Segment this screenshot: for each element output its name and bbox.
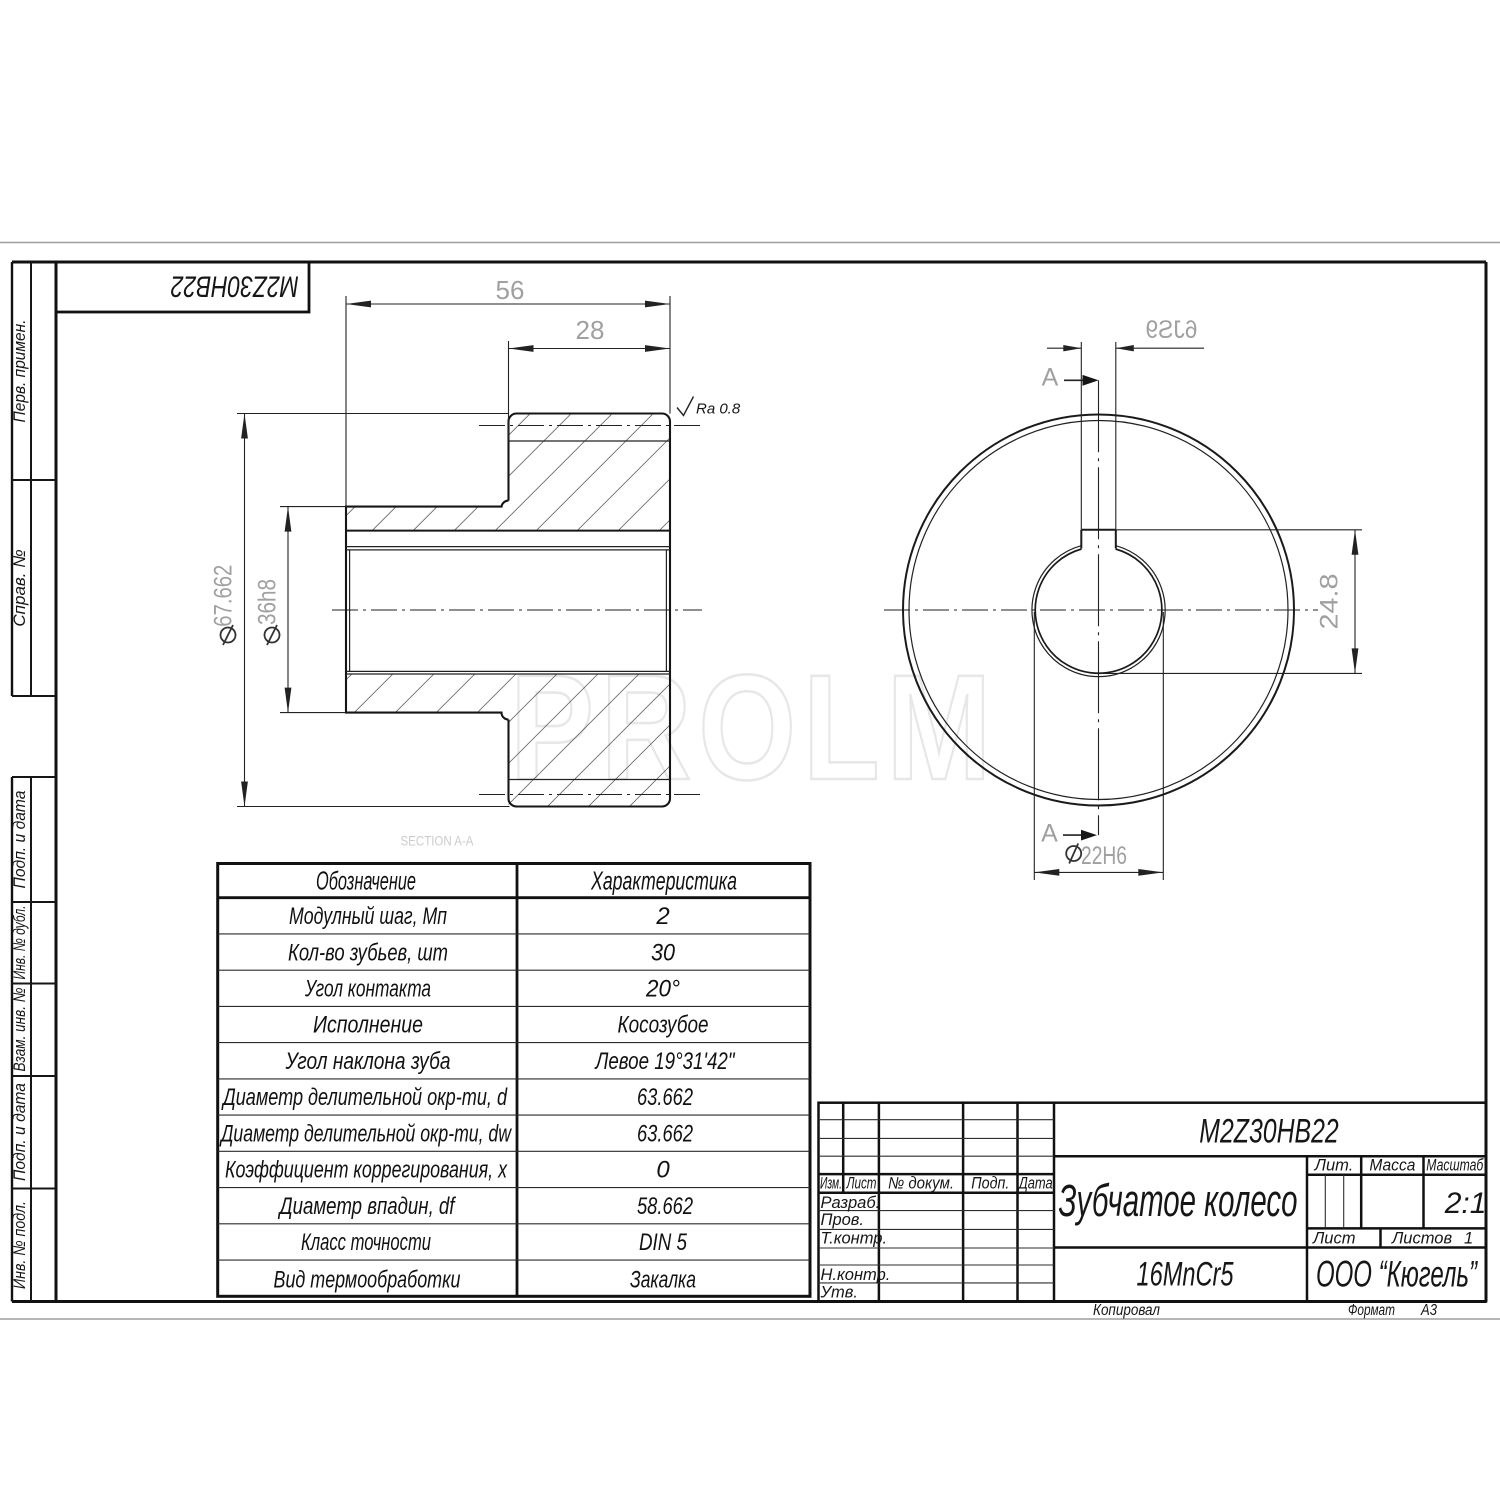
svg-text:Формат: Формат (1348, 1302, 1395, 1319)
svg-text:Масштаб: Масштаб (1426, 1157, 1484, 1175)
svg-text:Разраб.: Разраб. (821, 1194, 881, 1212)
svg-text:Исполнение: Исполнение (313, 1012, 423, 1039)
svg-text:Кол-во зубьев, шт: Кол-во зубьев, шт (288, 939, 448, 966)
svg-text:SECTION A-A: SECTION A-A (401, 833, 475, 849)
svg-text:2: 2 (655, 903, 669, 930)
svg-text:Лит.: Лит. (1314, 1157, 1354, 1175)
svg-text:Диаметр делительной окр-ти, d: Диаметр делительной окр-ти, d (221, 1084, 508, 1111)
svg-text:Пров.: Пров. (821, 1211, 865, 1229)
svg-text:Диаметр делительной окр-ти, dw: Диаметр делительной окр-ти, dw (219, 1120, 512, 1147)
svg-text:ООО “Кюгель”: ООО “Кюгель” (1316, 1254, 1478, 1295)
svg-text:Левое 19°31'42": Левое 19°31'42" (594, 1048, 736, 1075)
svg-text:28: 28 (576, 315, 605, 345)
svg-text:Модулный шаг, Мп: Модулный шаг, Мп (289, 903, 447, 930)
svg-text:Дата: Дата (1017, 1175, 1053, 1193)
svg-text:58.662: 58.662 (637, 1193, 693, 1220)
svg-text:Инв. № подл.: Инв. № подл. (10, 1201, 29, 1289)
svg-text:2:1: 2:1 (1444, 1187, 1487, 1220)
svg-text:Перв. примен.: Перв. примен. (10, 320, 29, 423)
svg-text:DIN 5: DIN 5 (639, 1229, 688, 1256)
svg-text:Изм.: Изм. (820, 1175, 842, 1193)
svg-text:Закалка: Закалка (630, 1266, 696, 1293)
svg-text:Характеристика: Характеристика (590, 866, 737, 896)
svg-text:Взам. инв. №: Взам. инв. № (10, 988, 29, 1072)
svg-text:Лист: Лист (846, 1175, 877, 1193)
svg-text:Н.контр.: Н.контр. (821, 1266, 891, 1284)
svg-text:Лист: Лист (1312, 1230, 1355, 1248)
svg-text:Зубчатое колесо: Зубчатое колесо (1059, 1175, 1298, 1226)
svg-text:M2Z30HB22: M2Z30HB22 (170, 270, 298, 303)
svg-text:63.662: 63.662 (637, 1084, 693, 1111)
svg-text:Угол наклона зуба: Угол наклона зуба (285, 1048, 451, 1075)
svg-text:36h8: 36h8 (254, 579, 282, 625)
svg-text:1: 1 (1464, 1230, 1473, 1248)
svg-text:Обозначение: Обозначение (316, 866, 416, 896)
svg-text:Т.контр.: Т.контр. (821, 1230, 888, 1248)
svg-text:Копировал: Копировал (1093, 1302, 1160, 1319)
svg-text:Коэффициент коррегирования, x: Коэффициент коррегирования, x (225, 1157, 508, 1184)
svg-text:M2Z30HB22: M2Z30HB22 (1199, 1113, 1339, 1151)
svg-text:Косозубое: Косозубое (618, 1012, 709, 1039)
svg-text:A: A (1042, 364, 1059, 392)
svg-text:Ra 0.8: Ra 0.8 (696, 401, 741, 418)
svg-text:63.662: 63.662 (637, 1120, 693, 1147)
svg-text:Справ. №: Справ. № (10, 549, 29, 626)
svg-text:A: A (1041, 820, 1058, 848)
svg-text:Диаметр впадин, df: Диаметр впадин, df (277, 1193, 456, 1220)
svg-text:Утв.: Утв. (820, 1284, 859, 1302)
svg-text:Масса: Масса (1369, 1157, 1415, 1175)
svg-text:24.8: 24.8 (1316, 574, 1344, 630)
svg-text:Инв. № дубл.: Инв. № дубл. (10, 906, 29, 980)
svg-text:Подп. и дата: Подп. и дата (10, 791, 29, 889)
svg-text:Листов: Листов (1391, 1230, 1452, 1248)
svg-text:Вид термообработки: Вид термообработки (274, 1266, 461, 1293)
svg-text:Класс точности: Класс точности (301, 1229, 431, 1256)
svg-text:56: 56 (496, 275, 525, 305)
svg-text:67.662: 67.662 (210, 565, 238, 627)
svg-text:№ докум.: № докум. (888, 1175, 954, 1193)
svg-text:6JS9: 6JS9 (1146, 316, 1198, 344)
svg-text:Подп. и дата: Подп. и дата (10, 1083, 29, 1181)
svg-text:22H6: 22H6 (1081, 842, 1127, 870)
svg-text:Угол контакта: Угол контакта (304, 976, 431, 1003)
svg-text:0: 0 (656, 1157, 670, 1184)
svg-text:Подп.: Подп. (971, 1175, 1009, 1193)
svg-text:30: 30 (651, 939, 676, 966)
svg-text:20°: 20° (645, 976, 680, 1003)
svg-text:А3: А3 (1420, 1302, 1437, 1319)
svg-text:16MnCr5: 16MnCr5 (1137, 1256, 1234, 1294)
